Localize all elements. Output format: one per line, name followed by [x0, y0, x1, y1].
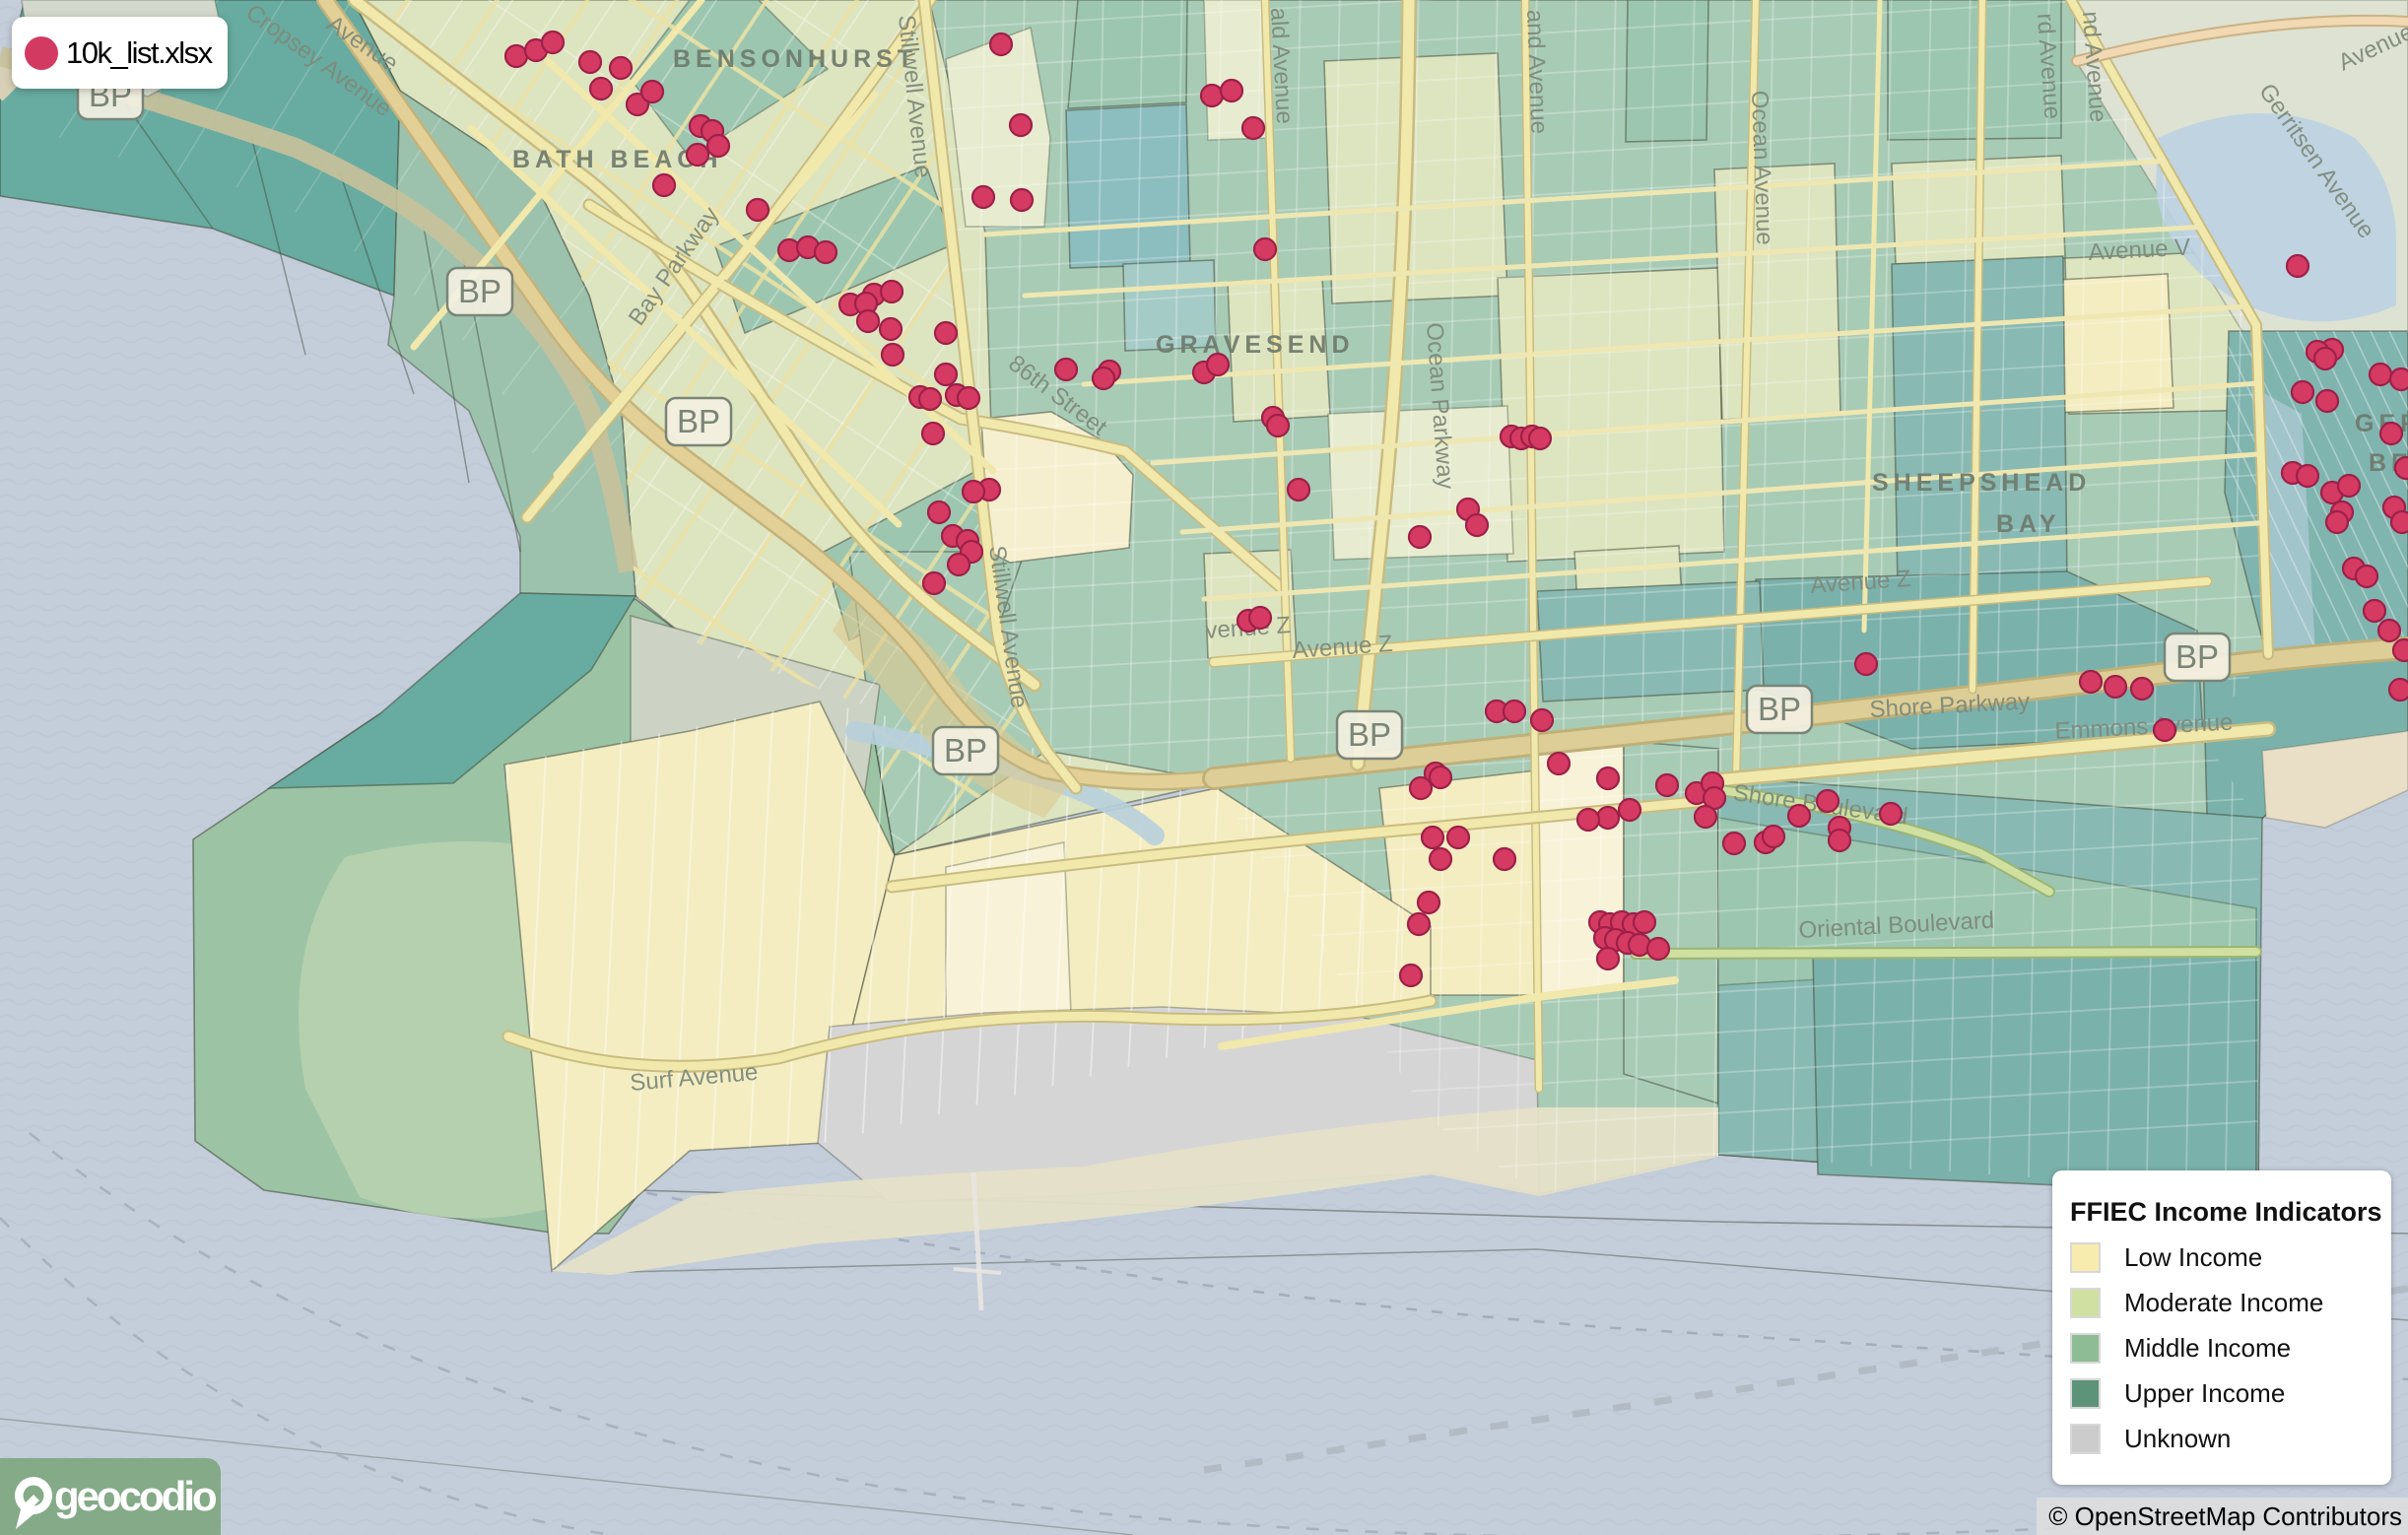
- svg-text:BP: BP: [2175, 638, 2219, 675]
- svg-text:BP: BP: [1758, 691, 1801, 727]
- svg-text:BP: BP: [677, 403, 720, 439]
- svg-text:Ocean Avenue: Ocean Avenue: [1746, 90, 1777, 245]
- svg-text:BAY: BAY: [1996, 510, 2061, 538]
- svg-text:and Avenue: and Avenue: [1521, 9, 1552, 134]
- svg-text:BP: BP: [944, 732, 987, 768]
- svg-text:BP: BP: [458, 273, 502, 309]
- svg-text:geocodio: geocodio: [54, 1473, 217, 1519]
- svg-text:GRAVESEND: GRAVESEND: [1156, 331, 1355, 359]
- svg-text:SHEEPSHEAD: SHEEPSHEAD: [1872, 469, 2091, 497]
- svg-text:BP: BP: [1348, 716, 1391, 753]
- svg-text:Avenue V: Avenue V: [2088, 234, 2191, 266]
- svg-text:BENSONHURST: BENSONHURST: [673, 45, 917, 73]
